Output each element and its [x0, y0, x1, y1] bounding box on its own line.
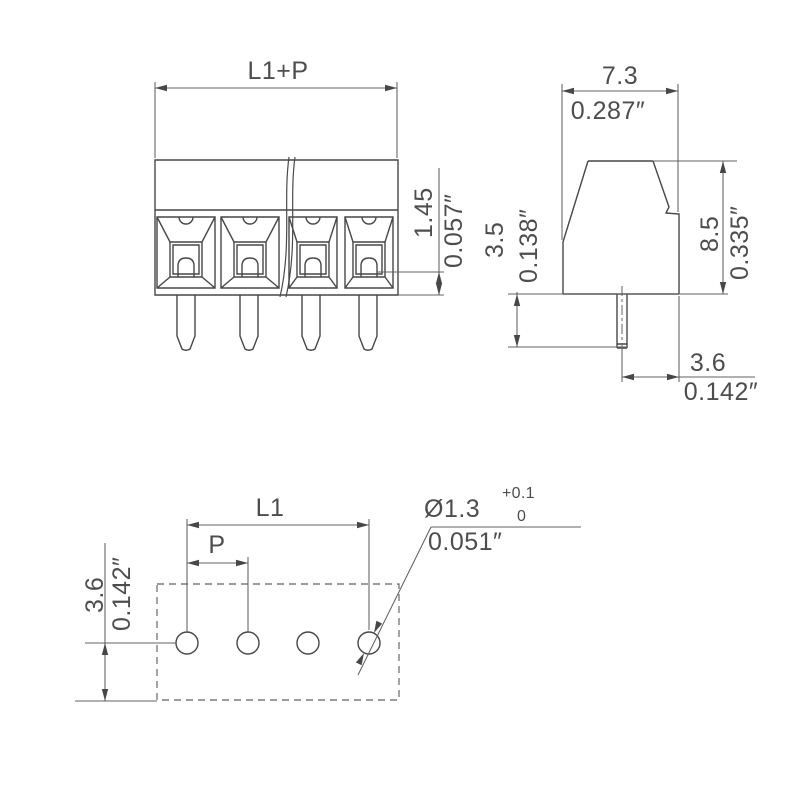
- hole-diameter-in-label: 0.051″: [428, 528, 502, 556]
- drill-hole-1: [176, 632, 198, 654]
- dim-arrow: [514, 335, 520, 347]
- front-view: L1+P 1.45 0.057″: [155, 57, 468, 350]
- terminal-1: [157, 217, 215, 288]
- dim-clamp-extension-lines: [377, 272, 444, 295]
- dim-arrow: [666, 88, 678, 94]
- dim-arrow: [102, 643, 108, 655]
- dim-pin-offset-extension-lines: [622, 296, 679, 382]
- dim-arrow: [514, 294, 520, 306]
- dim-arrow: [622, 374, 634, 380]
- solder-pins-front: [177, 295, 377, 350]
- dim-l1-label: L1: [256, 494, 285, 522]
- hole-tolerance-lower-label: 0: [517, 508, 526, 525]
- dim-l1p-label: L1+P: [247, 57, 308, 85]
- dim-arrow: [436, 272, 442, 284]
- dim-arrow: [187, 522, 199, 528]
- dim-width-in-label: 0.287″: [571, 97, 645, 125]
- technical-drawing: L1+P 1.45 0.057″ 7.3 0.287″ 8.5 0.335″: [0, 0, 800, 800]
- drill-hole-4: [358, 632, 380, 654]
- dim-arrow: [720, 282, 726, 294]
- terminal-4: [345, 217, 393, 288]
- side-body-outline: [563, 161, 679, 294]
- dim-height-mm-label: 8.5: [696, 216, 724, 252]
- drill-hole-2: [237, 632, 259, 654]
- drill-hole-3: [297, 632, 319, 654]
- dim-arrow: [562, 88, 574, 94]
- terminal-3: [289, 217, 337, 288]
- dim-edge-extension-lines: [75, 643, 176, 701]
- dim-clamp-in-label: 0.057″: [440, 194, 468, 268]
- hole-diameter-label: Ø1.3: [424, 495, 480, 523]
- dim-arrow: [155, 85, 167, 91]
- dim-arrow: [187, 560, 199, 566]
- dim-pin-length-mm-label: 3.5: [481, 222, 509, 258]
- dim-p-label: P: [208, 531, 225, 559]
- dim-edge-mm-label: 3.6: [81, 577, 109, 613]
- dim-arrow: [236, 560, 248, 566]
- dim-arrow: [720, 161, 726, 173]
- dim-pin-offset-in-label: 0.142″: [684, 378, 758, 406]
- dim-arrow: [357, 522, 369, 528]
- dim-clamp-mm-label: 1.45: [410, 187, 438, 238]
- dim-height-in-label: 0.335″: [726, 206, 754, 280]
- dim-pin-offset-mm-label: 3.6: [690, 349, 726, 377]
- dim-arrow: [436, 283, 442, 295]
- board-view: L1 P 3.6 0.142″ Ø1.3 +0.1 0 0.051″: [75, 485, 581, 701]
- break-line: [280, 157, 295, 297]
- terminal-2: [221, 217, 279, 288]
- dim-width-mm-label: 7.3: [602, 62, 638, 90]
- dim-arrow: [102, 689, 108, 701]
- pcb-outline: [157, 584, 399, 700]
- side-view: 7.3 0.287″ 8.5 0.335″ 3.5 0.138″ 3.6 0.1…: [481, 62, 758, 406]
- dim-edge-in-label: 0.142″: [108, 557, 136, 631]
- dim-pin-length-in-label: 0.138″: [515, 209, 543, 283]
- hole-tolerance-upper-label: +0.1: [502, 485, 535, 502]
- dim-arrow: [667, 374, 679, 380]
- dim-l1p-extension-lines: [155, 82, 397, 158]
- dim-arrow: [385, 85, 397, 91]
